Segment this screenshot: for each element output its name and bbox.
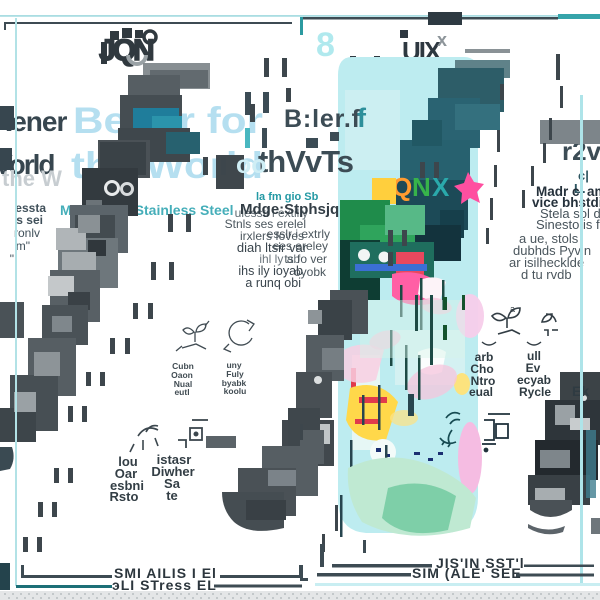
svg-text:oo: oo xyxy=(236,151,267,179)
svg-text:te: te xyxy=(166,488,178,503)
svg-text:f: f xyxy=(357,103,367,133)
svg-text:thVvTs: thVvTs xyxy=(258,144,354,179)
svg-text:Rycle: Rycle xyxy=(519,385,551,399)
svg-text:B:ler.f: B:ler.f xyxy=(284,105,361,133)
svg-text:эLI STress EL: эLI STress EL xyxy=(112,577,217,593)
svg-text:koolu: koolu xyxy=(224,386,247,396)
svg-text:x: x xyxy=(437,30,447,50)
svg-text:Mdge:Stphsjq: Mdge:Stphsjq xyxy=(240,201,339,218)
svg-text:Rsto: Rsto xyxy=(110,489,139,504)
svg-text:SIM (ALE' SEE: SIM (ALE' SEE xyxy=(412,565,522,581)
svg-text:a: a xyxy=(510,304,515,314)
svg-text:ts fo ver: ts fo ver xyxy=(284,252,327,266)
svg-text:eutl: eutl xyxy=(174,387,189,397)
svg-text:s sei: s sei xyxy=(16,213,43,227)
svg-text:m": m" xyxy=(16,239,30,253)
svg-text:d tu rvdb: d tu rvdb xyxy=(521,267,572,282)
svg-text:a runq obi: a runq obi xyxy=(245,276,301,290)
svg-text:Sinesto is f: Sinesto is f xyxy=(536,217,600,232)
svg-text:ees ereley: ees ereley xyxy=(273,239,328,253)
svg-text:ronlv: ronlv xyxy=(14,226,40,240)
svg-text:8: 8 xyxy=(316,26,335,64)
svg-text:eual: eual xyxy=(469,385,493,399)
svg-text:": " xyxy=(10,252,14,266)
svg-text:oyobk: oyobk xyxy=(294,265,327,279)
